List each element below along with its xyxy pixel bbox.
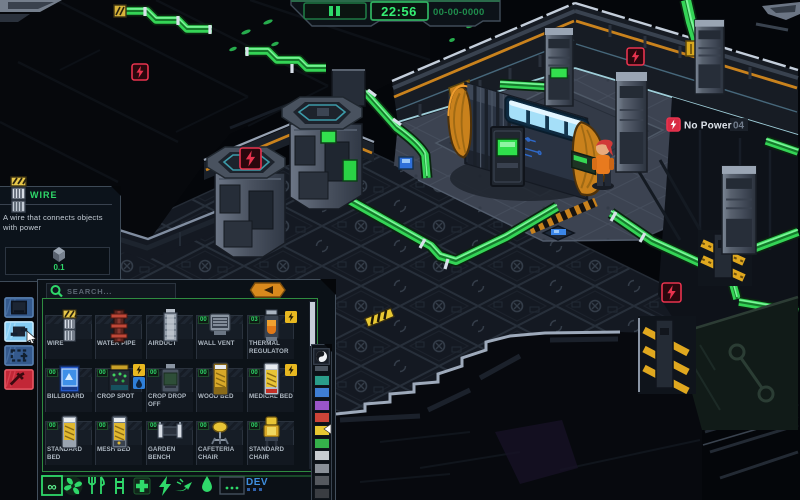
svg-text:04: 04: [733, 121, 745, 132]
svg-text:∞: ∞: [47, 479, 56, 494]
svg-text:0.1: 0.1: [53, 263, 65, 272]
svg-text:22:56: 22:56: [381, 4, 417, 19]
svg-text:No Power: No Power: [684, 121, 732, 132]
svg-text:00-00-0000: 00-00-0000: [433, 7, 485, 18]
